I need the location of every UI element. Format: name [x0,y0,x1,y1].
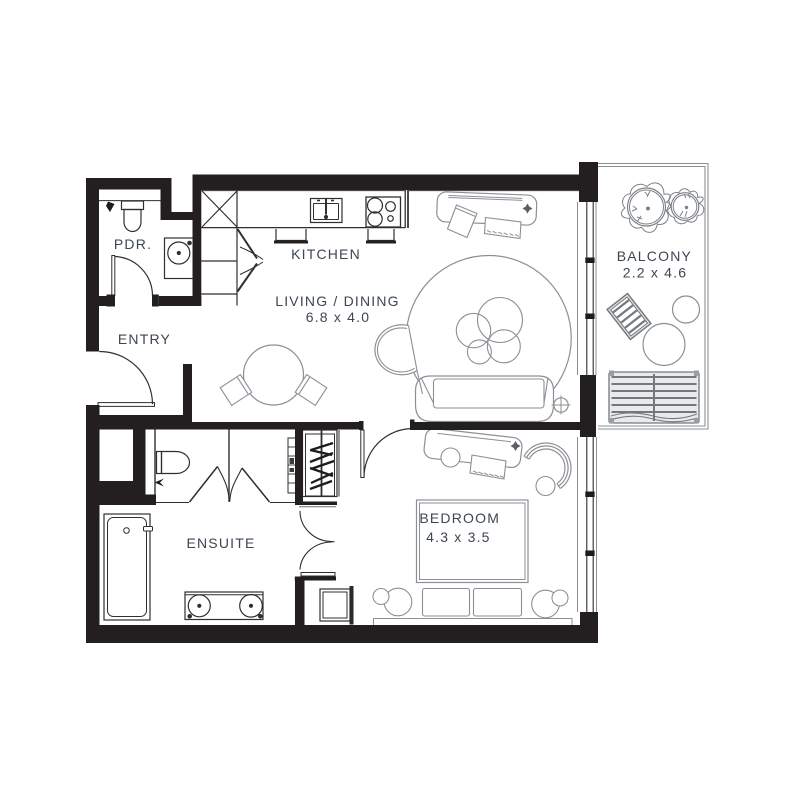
svg-text:ENTRY: ENTRY [118,331,171,347]
svg-text:2.2 x 4.6: 2.2 x 4.6 [623,265,688,281]
svg-text:LIVING / DINING: LIVING / DINING [275,293,400,309]
svg-text:BALCONY: BALCONY [617,248,692,264]
svg-text:4.3 x 3.5: 4.3 x 3.5 [426,529,491,545]
svg-text:KITCHEN: KITCHEN [291,246,361,262]
svg-text:BEDROOM: BEDROOM [419,510,500,526]
svg-text:6.8 x 4.0: 6.8 x 4.0 [306,309,371,325]
svg-text:PDR.: PDR. [114,236,152,252]
svg-text:ENSUITE: ENSUITE [186,535,255,551]
